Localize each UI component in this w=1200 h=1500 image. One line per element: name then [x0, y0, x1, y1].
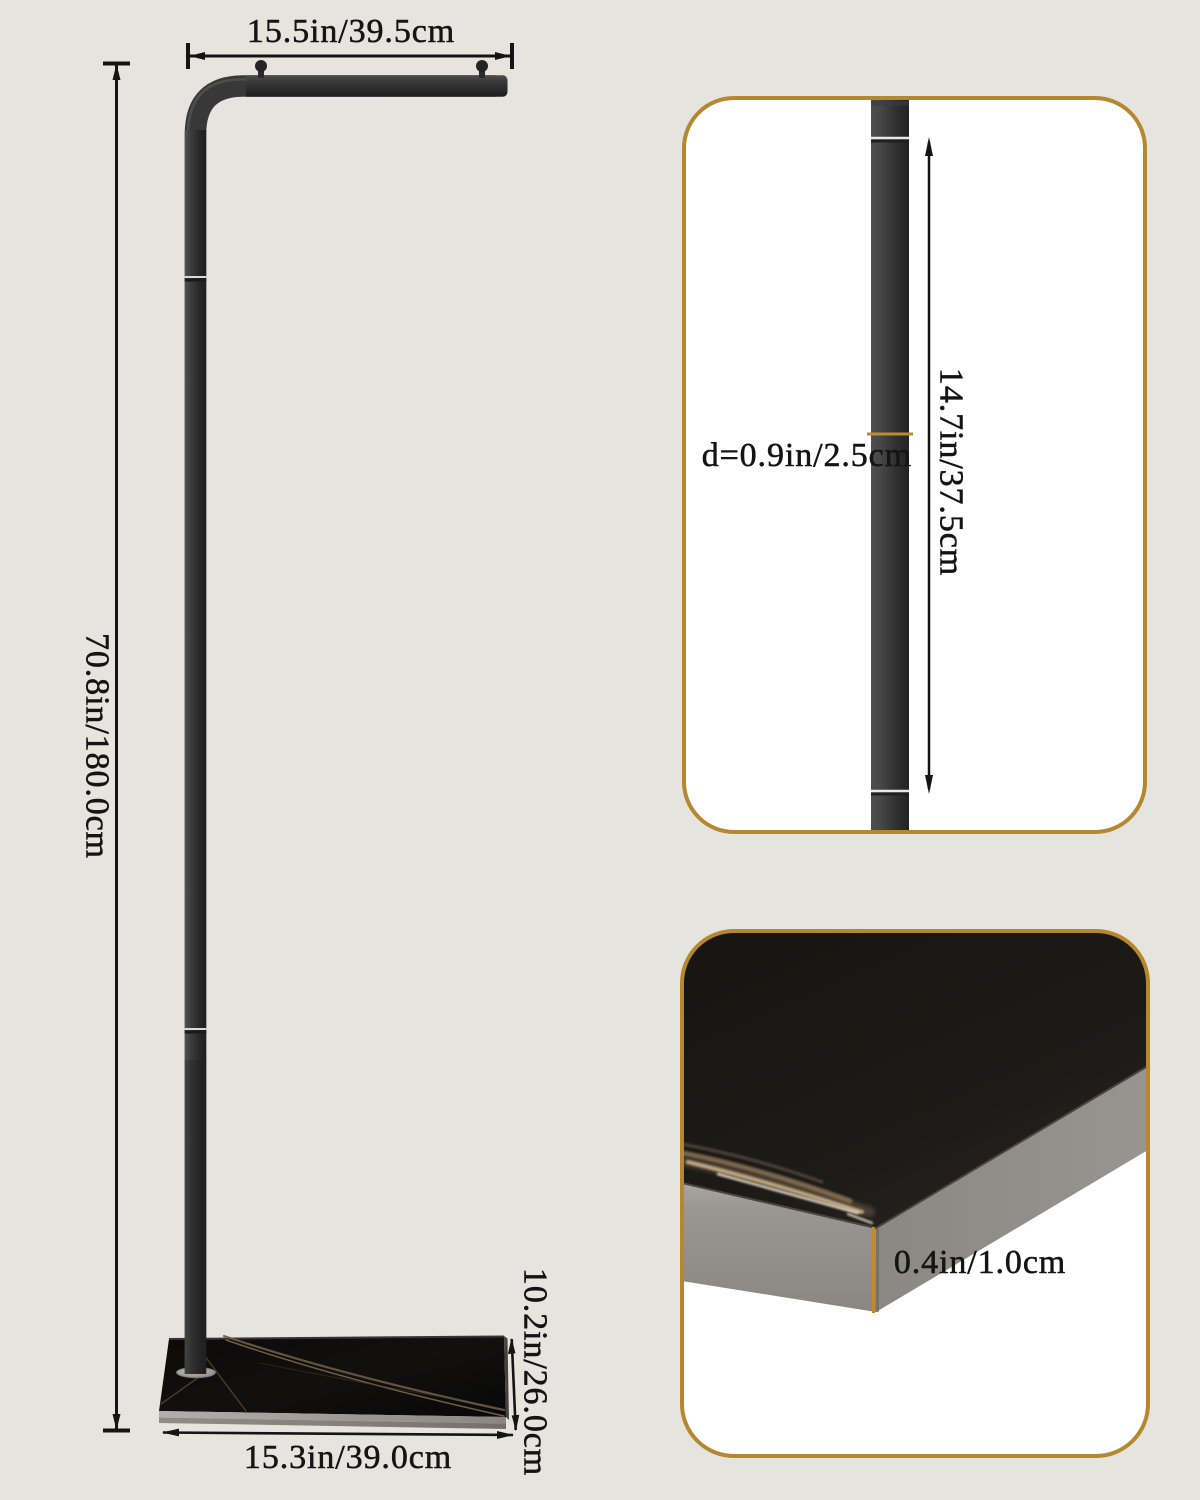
- svg-text:70.8in/180.0cm: 70.8in/180.0cm: [79, 633, 116, 859]
- svg-text:15.5in/39.5cm: 15.5in/39.5cm: [247, 13, 455, 50]
- svg-text:0.4in/1.0cm: 0.4in/1.0cm: [894, 1244, 1066, 1281]
- svg-text:d=0.9in/2.5cm: d=0.9in/2.5cm: [702, 437, 912, 474]
- svg-text:14.7in/37.5cm: 14.7in/37.5cm: [933, 368, 970, 576]
- svg-text:15.3in/39.0cm: 15.3in/39.0cm: [244, 1439, 452, 1476]
- svg-text:10.2in/26.0cm: 10.2in/26.0cm: [517, 1268, 554, 1476]
